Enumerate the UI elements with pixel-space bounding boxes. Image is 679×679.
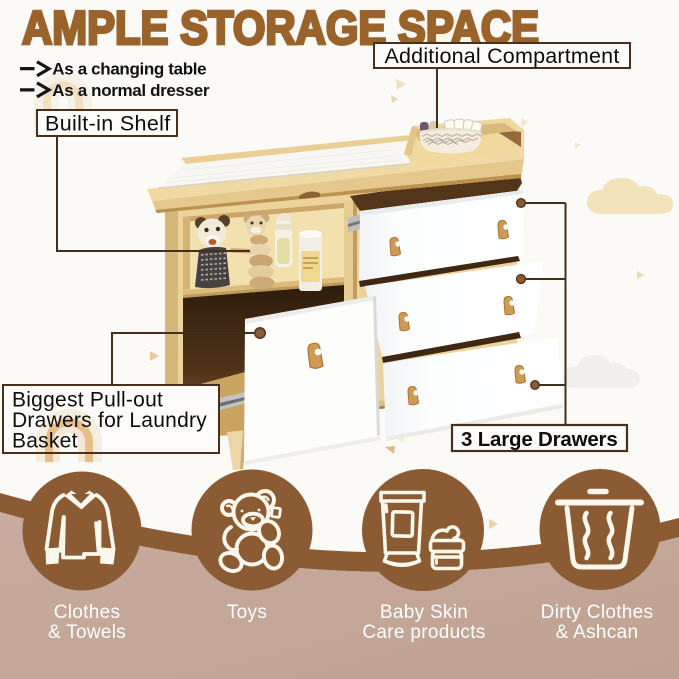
svg-text:& Towels: & Towels bbox=[48, 622, 126, 643]
svg-text:3 Large Drawers: 3 Large Drawers bbox=[461, 428, 618, 451]
svg-text:Care products: Care products bbox=[362, 622, 485, 643]
svg-text:As a changing table: As a changing table bbox=[52, 60, 206, 79]
svg-text:As a normal dresser: As a normal dresser bbox=[52, 81, 210, 100]
svg-text:Baby Skin: Baby Skin bbox=[380, 602, 468, 623]
svg-text:Dirty Clothes: Dirty Clothes bbox=[541, 602, 654, 623]
svg-text:Toys: Toys bbox=[227, 602, 267, 623]
svg-text:Additional Compartment: Additional Compartment bbox=[384, 44, 619, 68]
svg-text:Clothes: Clothes bbox=[54, 602, 121, 623]
svg-text:Built-in Shelf: Built-in Shelf bbox=[45, 112, 171, 136]
svg-text:Basket: Basket bbox=[12, 429, 78, 452]
svg-text:& Ashcan: & Ashcan bbox=[556, 622, 639, 643]
